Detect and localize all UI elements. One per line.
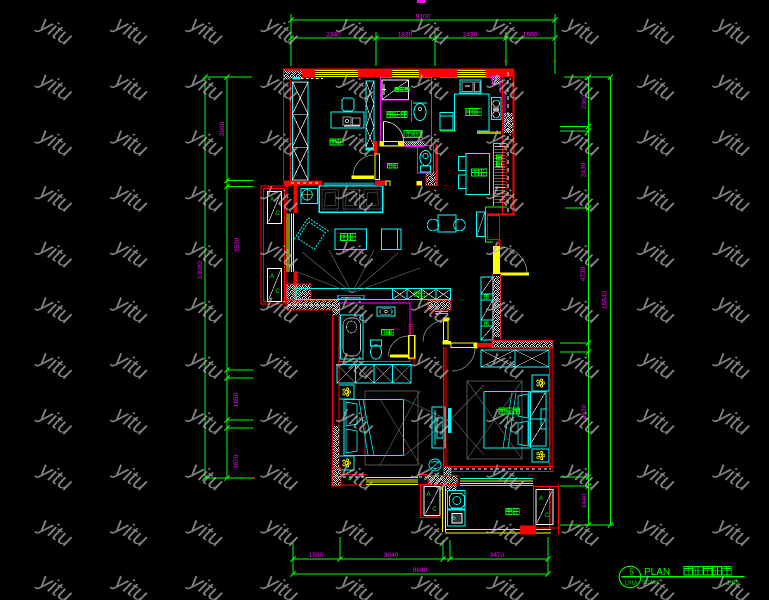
svg-text:1440: 1440 — [581, 493, 588, 508]
svg-text:A: A — [539, 496, 543, 502]
svg-text:C: C — [545, 513, 550, 519]
svg-text:13/13: 13/13 — [624, 581, 637, 587]
svg-text:1580: 1580 — [309, 552, 324, 559]
svg-text:A: A — [426, 492, 430, 498]
svg-text:3530: 3530 — [234, 237, 241, 252]
svg-text:3640: 3640 — [384, 552, 399, 559]
svg-text:C: C — [432, 507, 437, 513]
svg-text:5: 5 — [629, 568, 634, 577]
svg-text:1850: 1850 — [233, 392, 240, 407]
svg-text:2430: 2430 — [581, 162, 588, 177]
svg-text:3470: 3470 — [490, 552, 505, 559]
svg-text:1830: 1830 — [398, 32, 413, 39]
svg-text:A: A — [270, 274, 274, 280]
svg-text:3660: 3660 — [219, 121, 226, 136]
svg-text:2430: 2430 — [463, 32, 478, 39]
svg-text:C: C — [275, 211, 280, 217]
svg-text:3870: 3870 — [233, 454, 240, 469]
